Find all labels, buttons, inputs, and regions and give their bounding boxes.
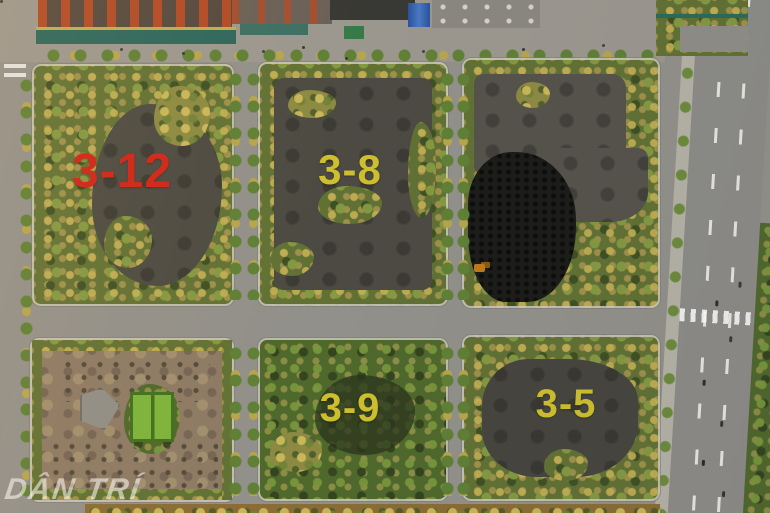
- road-debris-specks: [0, 0, 3, 3]
- plot-northeast: [462, 58, 660, 308]
- highway: [651, 0, 770, 513]
- plot-label-3-9: 3-9: [300, 388, 400, 428]
- material-pile: [330, 0, 415, 20]
- plot-label-3-8: 3-8: [300, 149, 400, 191]
- green-container: [344, 26, 364, 39]
- excavator: [474, 264, 485, 272]
- access-road: [680, 26, 748, 52]
- construction-strip: [0, 0, 665, 62]
- street-tree-column: [247, 340, 260, 496]
- green-net-enclosure: [130, 392, 174, 442]
- dredged-mud-area: [468, 152, 576, 302]
- dantri-watermark: DÂN TRÍ: [3, 473, 143, 507]
- bottom-vegetation-strip: [85, 504, 660, 513]
- site-sheds: [432, 0, 540, 28]
- steel-frame-structure: [38, 0, 232, 30]
- blue-roof-building: [408, 3, 430, 27]
- street-tree-column: [457, 66, 470, 300]
- plot-label-3-5: 3-5: [516, 384, 616, 424]
- street-tree-column: [457, 340, 470, 496]
- steel-frame-structure-2: [232, 0, 332, 24]
- aerial-photo: 3-12 3-8 3-9 3-5 DÂN TRÍ: [0, 0, 770, 513]
- street-tree-column: [441, 340, 454, 496]
- construction-fence-teal: [36, 27, 236, 44]
- street-tree-column: [247, 66, 260, 300]
- plot-3-9-yellow-patch: [270, 432, 322, 472]
- street-tree-column: [441, 66, 454, 300]
- construction-fence-teal-2: [240, 24, 308, 35]
- green-fence-line: [656, 14, 748, 18]
- street-tree-column: [229, 66, 242, 300]
- corner-vegetation: [656, 0, 748, 56]
- garden-hedge: [32, 340, 232, 351]
- street-tree-column: [229, 340, 242, 496]
- plot-label-3-12: 3-12: [67, 148, 177, 196]
